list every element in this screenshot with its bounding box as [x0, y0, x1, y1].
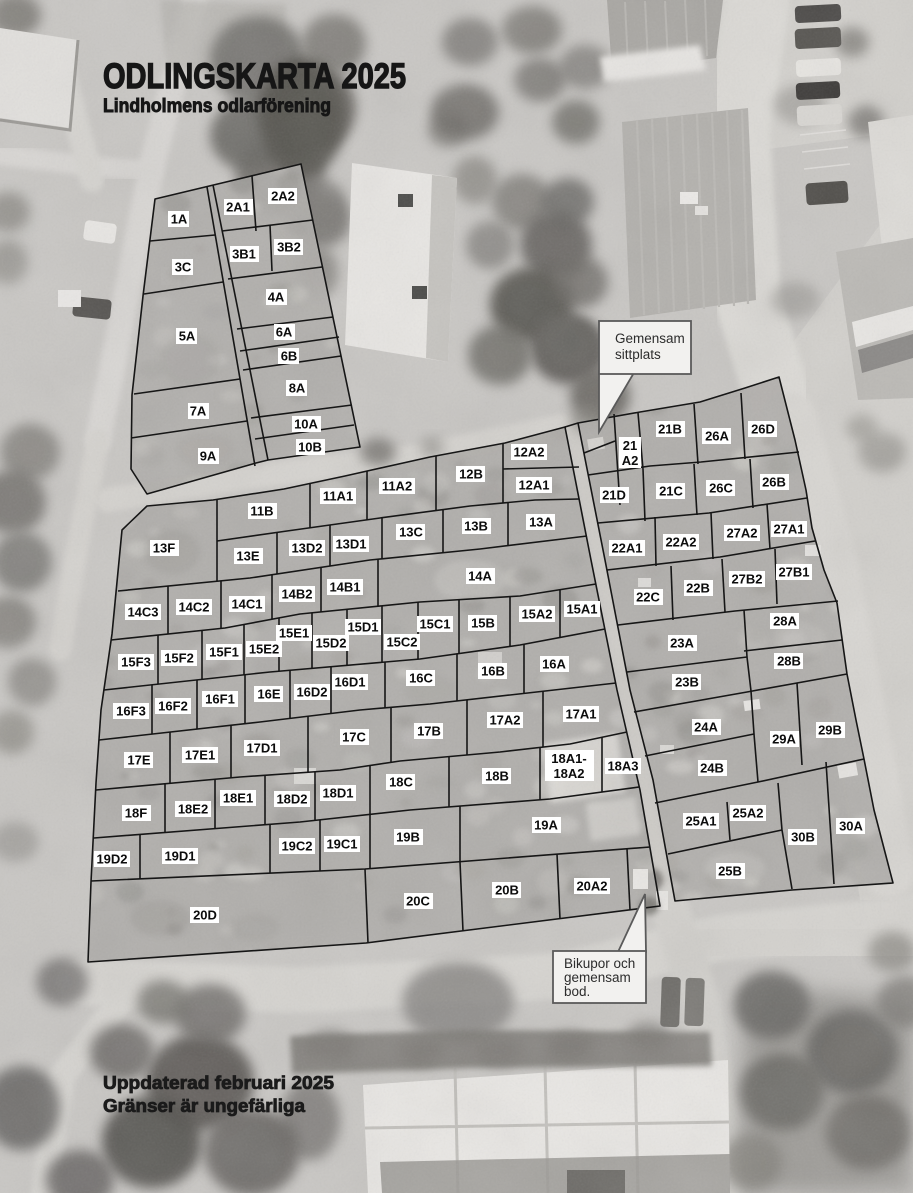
svg-text:15E1: 15E1 [279, 626, 309, 641]
svg-text:22C: 22C [636, 590, 660, 605]
svg-text:24B: 24B [700, 761, 724, 776]
svg-text:15B: 15B [471, 616, 495, 631]
svg-text:Uppdaterad februari 2025: Uppdaterad februari 2025 [103, 1073, 334, 1093]
svg-text:Bikupor och: Bikupor och [564, 956, 635, 971]
svg-text:24A: 24A [694, 720, 718, 735]
svg-text:20A2: 20A2 [576, 879, 607, 894]
svg-text:5A: 5A [179, 329, 196, 344]
svg-text:15E2: 15E2 [249, 642, 279, 657]
svg-text:18D1: 18D1 [322, 786, 353, 801]
svg-text:21B: 21B [658, 422, 682, 437]
svg-text:16A: 16A [542, 657, 566, 672]
svg-text:14A: 14A [468, 569, 492, 584]
svg-text:14B1: 14B1 [329, 580, 360, 595]
svg-text:19A: 19A [534, 818, 558, 833]
svg-text:18D2: 18D2 [276, 792, 307, 807]
svg-text:15C2: 15C2 [386, 635, 417, 650]
svg-text:19C1: 19C1 [326, 837, 357, 852]
svg-text:21C: 21C [659, 484, 683, 499]
svg-text:15D2: 15D2 [315, 636, 346, 651]
svg-text:23A: 23A [670, 636, 694, 651]
svg-text:17A1: 17A1 [565, 707, 596, 722]
svg-text:16F2: 16F2 [158, 699, 188, 714]
svg-text:3C: 3C [175, 260, 192, 275]
svg-text:11A2: 11A2 [382, 479, 412, 494]
svg-text:15F2: 15F2 [164, 651, 194, 666]
svg-text:17C: 17C [342, 730, 366, 745]
svg-text:13B: 13B [464, 519, 488, 534]
svg-text:28A: 28A [773, 614, 797, 629]
svg-text:Gränser är ungefärliga: Gränser är ungefärliga [103, 1096, 306, 1116]
svg-text:21D: 21D [602, 488, 626, 503]
svg-text:ODLINGSKARTA 2025: ODLINGSKARTA 2025 [103, 56, 406, 96]
svg-text:18C: 18C [389, 775, 413, 790]
svg-text:16F1: 16F1 [205, 692, 235, 707]
svg-text:16D1: 16D1 [334, 675, 365, 690]
svg-text:27A2: 27A2 [726, 526, 757, 541]
svg-text:27B1: 27B1 [778, 565, 809, 580]
svg-text:12A1: 12A1 [518, 478, 549, 493]
svg-text:21: 21 [623, 438, 637, 453]
svg-text:20D: 20D [193, 908, 217, 923]
svg-text:14C1: 14C1 [231, 597, 262, 612]
svg-text:3B1: 3B1 [232, 247, 256, 262]
svg-text:25A2: 25A2 [732, 806, 763, 821]
svg-text:gemensam: gemensam [564, 970, 631, 985]
svg-text:13D1: 13D1 [335, 537, 366, 552]
svg-text:2A2: 2A2 [271, 189, 295, 204]
svg-text:22A1: 22A1 [611, 541, 642, 556]
svg-text:12B: 12B [459, 467, 483, 482]
svg-text:16F3: 16F3 [116, 704, 146, 719]
svg-text:23B: 23B [675, 675, 699, 690]
svg-text:29A: 29A [772, 732, 796, 747]
svg-text:15F3: 15F3 [121, 655, 151, 670]
svg-text:6A: 6A [276, 325, 293, 340]
svg-text:19D1: 19D1 [164, 849, 195, 864]
svg-text:14C3: 14C3 [127, 605, 158, 620]
svg-text:3B2: 3B2 [277, 240, 301, 255]
svg-text:7A: 7A [190, 404, 207, 419]
svg-text:17E: 17E [127, 753, 150, 768]
svg-text:28B: 28B [777, 654, 801, 669]
svg-text:14B2: 14B2 [281, 587, 312, 602]
svg-text:16E: 16E [257, 687, 280, 702]
svg-text:27B2: 27B2 [731, 572, 762, 587]
svg-text:2A1: 2A1 [226, 200, 250, 215]
svg-text:19D2: 19D2 [96, 852, 127, 867]
svg-text:15A1: 15A1 [566, 602, 597, 617]
svg-text:22B: 22B [686, 581, 710, 596]
svg-text:6B: 6B [281, 349, 298, 364]
svg-text:16C: 16C [409, 671, 433, 686]
svg-text:15D1: 15D1 [347, 620, 378, 635]
svg-text:4A: 4A [268, 290, 285, 305]
svg-text:10B: 10B [298, 440, 322, 455]
svg-text:26C: 26C [709, 481, 733, 496]
svg-text:A2: A2 [622, 453, 639, 468]
svg-text:18E1: 18E1 [223, 791, 253, 806]
svg-text:25A1: 25A1 [685, 814, 716, 829]
svg-text:bod.: bod. [564, 984, 590, 999]
svg-text:17B: 17B [417, 724, 441, 739]
svg-text:18A2: 18A2 [553, 766, 584, 781]
svg-text:30B: 30B [791, 830, 815, 845]
svg-text:13D2: 13D2 [291, 541, 322, 556]
svg-text:11B: 11B [250, 504, 273, 519]
svg-text:26B: 26B [762, 475, 786, 490]
svg-text:1A: 1A [171, 212, 188, 227]
svg-text:29B: 29B [818, 723, 842, 738]
svg-text:22A2: 22A2 [665, 535, 696, 550]
svg-text:18A3: 18A3 [607, 759, 638, 774]
svg-text:8A: 8A [289, 381, 306, 396]
svg-text:13C: 13C [399, 525, 423, 540]
svg-text:15C1: 15C1 [419, 617, 450, 632]
svg-text:19B: 19B [396, 830, 420, 845]
svg-text:13F: 13F [153, 541, 175, 556]
svg-text:18E2: 18E2 [178, 802, 208, 817]
svg-text:16B: 16B [481, 664, 505, 679]
svg-text:17A2: 17A2 [489, 713, 520, 728]
svg-text:20B: 20B [495, 883, 519, 898]
svg-text:20C: 20C [406, 894, 430, 909]
svg-text:sittplats: sittplats [615, 347, 661, 362]
svg-text:14C2: 14C2 [178, 600, 209, 615]
svg-text:15A2: 15A2 [521, 607, 552, 622]
svg-text:Gemensam: Gemensam [615, 331, 685, 346]
svg-text:13E: 13E [236, 549, 259, 564]
svg-text:26D: 26D [751, 422, 775, 437]
svg-text:9A: 9A [200, 449, 217, 464]
svg-text:13A: 13A [529, 515, 553, 530]
svg-text:27A1: 27A1 [773, 522, 804, 537]
svg-text:18A1-: 18A1- [551, 751, 586, 766]
svg-text:18B: 18B [485, 769, 509, 784]
svg-text:30A: 30A [839, 819, 863, 834]
svg-text:25B: 25B [718, 864, 742, 879]
svg-text:10A: 10A [294, 417, 318, 432]
svg-text:18F: 18F [125, 806, 147, 821]
svg-text:15F1: 15F1 [209, 645, 239, 660]
svg-text:11A1: 11A1 [323, 489, 353, 504]
svg-text:Lindholmens odlarförening: Lindholmens odlarförening [103, 96, 331, 117]
svg-text:17D1: 17D1 [246, 741, 277, 756]
svg-text:17E1: 17E1 [185, 748, 215, 763]
svg-text:26A: 26A [705, 429, 729, 444]
svg-text:12A2: 12A2 [513, 445, 544, 460]
svg-text:19C2: 19C2 [281, 839, 312, 854]
svg-text:16D2: 16D2 [296, 685, 327, 700]
